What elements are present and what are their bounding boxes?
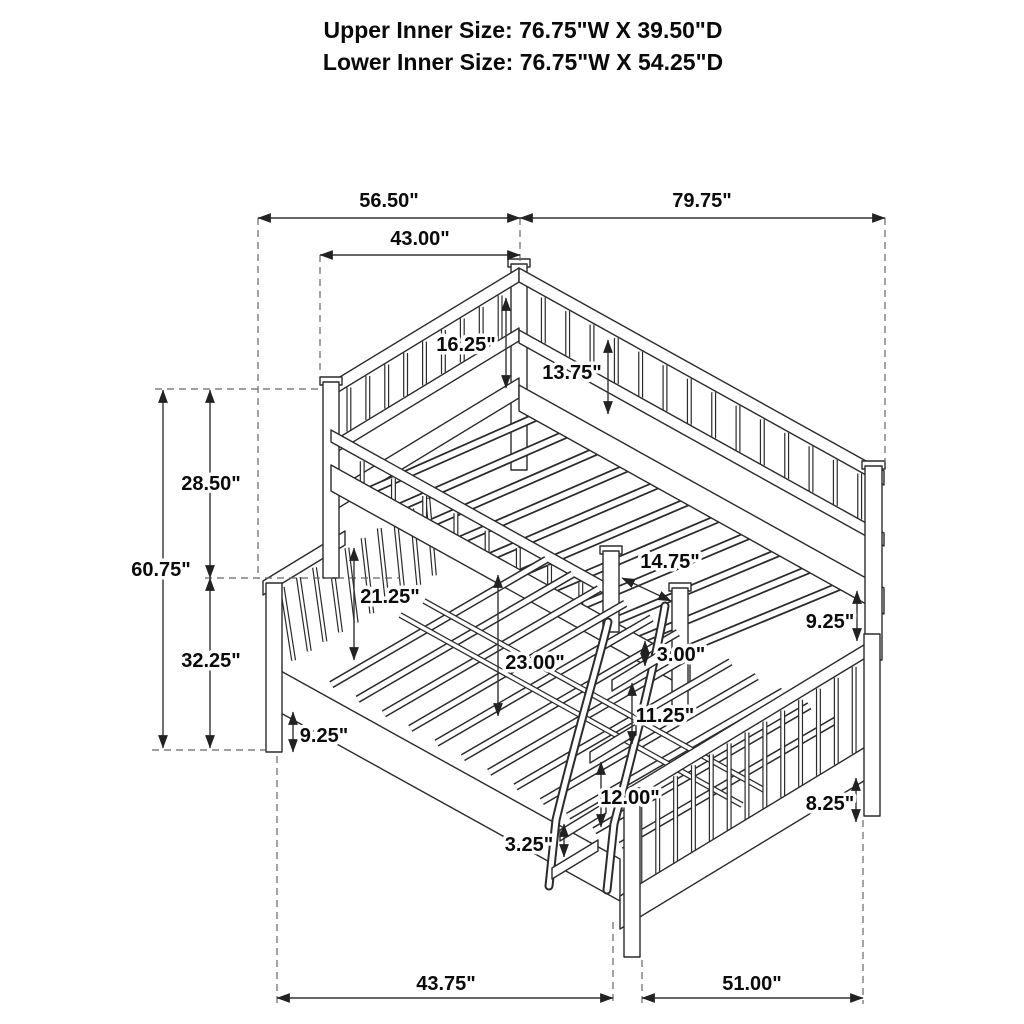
upper-right-post	[862, 461, 885, 660]
dim-label-overall-height: 60.75"	[131, 559, 191, 581]
dim-label-bunk-clearance: 23.00"	[505, 652, 565, 674]
dim-label-lower-width: 79.75"	[672, 190, 732, 212]
dim-label-lower-rail-floor-gap: 9.25"	[300, 725, 348, 747]
lower-left-post	[266, 583, 282, 752]
dim-label-upper-headboard-height: 16.25"	[436, 334, 496, 356]
lower-front-post	[624, 788, 640, 957]
dim-lower-headboard-height: 32.25"	[181, 578, 241, 748]
dim-label-upper-depth: 43.00"	[390, 228, 450, 250]
diagram-canvas: Upper Inner Size: 76.75"W X 39.50"D Lowe…	[0, 0, 1024, 1024]
dim-label-upper-guardrail-height: 13.75"	[542, 362, 602, 384]
dim-label-upper-width: 56.50"	[359, 190, 419, 212]
title-block: Upper Inner Size: 76.75"W X 39.50"D Lowe…	[323, 17, 723, 75]
dim-label-upper-section-height: 28.50"	[181, 473, 241, 495]
dim-label-footboard-floor-gap: 8.25"	[806, 793, 854, 815]
dim-overall-height: 60.75"	[131, 390, 272, 750]
lower-right-post	[864, 634, 880, 816]
dim-label-floor-span-right: 51.00"	[722, 973, 782, 995]
bunk-bed-dimension-diagram: Upper Inner Size: 76.75"W X 39.50"D Lowe…	[0, 0, 1024, 1024]
dimension-annotations: 56.50" 79.75" 43.00" 16.25" 13.75" 28.50…	[131, 190, 885, 1004]
upper-headboard	[330, 268, 519, 513]
dim-label-floor-span-left: 43.75"	[416, 973, 476, 995]
dim-label-lower-guard-height: 21.25"	[360, 586, 420, 608]
dim-label-side-rail-thickness: 3.25"	[505, 834, 553, 856]
dim-label-ladder-step-gap-upper: 11.25"	[636, 705, 694, 727]
title-lower-size: Lower Inner Size: 76.75"W X 54.25"D	[323, 49, 723, 75]
dim-label-ladder-opening-width: 14.75"	[640, 551, 700, 573]
dim-label-ladder-top-step-gap: 3.00"	[657, 644, 705, 666]
title-upper-size: Upper Inner Size: 76.75"W X 39.50"D	[324, 17, 723, 43]
dim-label-side-rail-gap: 9.25"	[806, 611, 854, 633]
upper-back-post	[508, 259, 530, 470]
dim-label-ladder-step-gap-lower: 12.00"	[600, 787, 660, 809]
dim-label-lower-headboard-height: 32.25"	[181, 650, 241, 672]
